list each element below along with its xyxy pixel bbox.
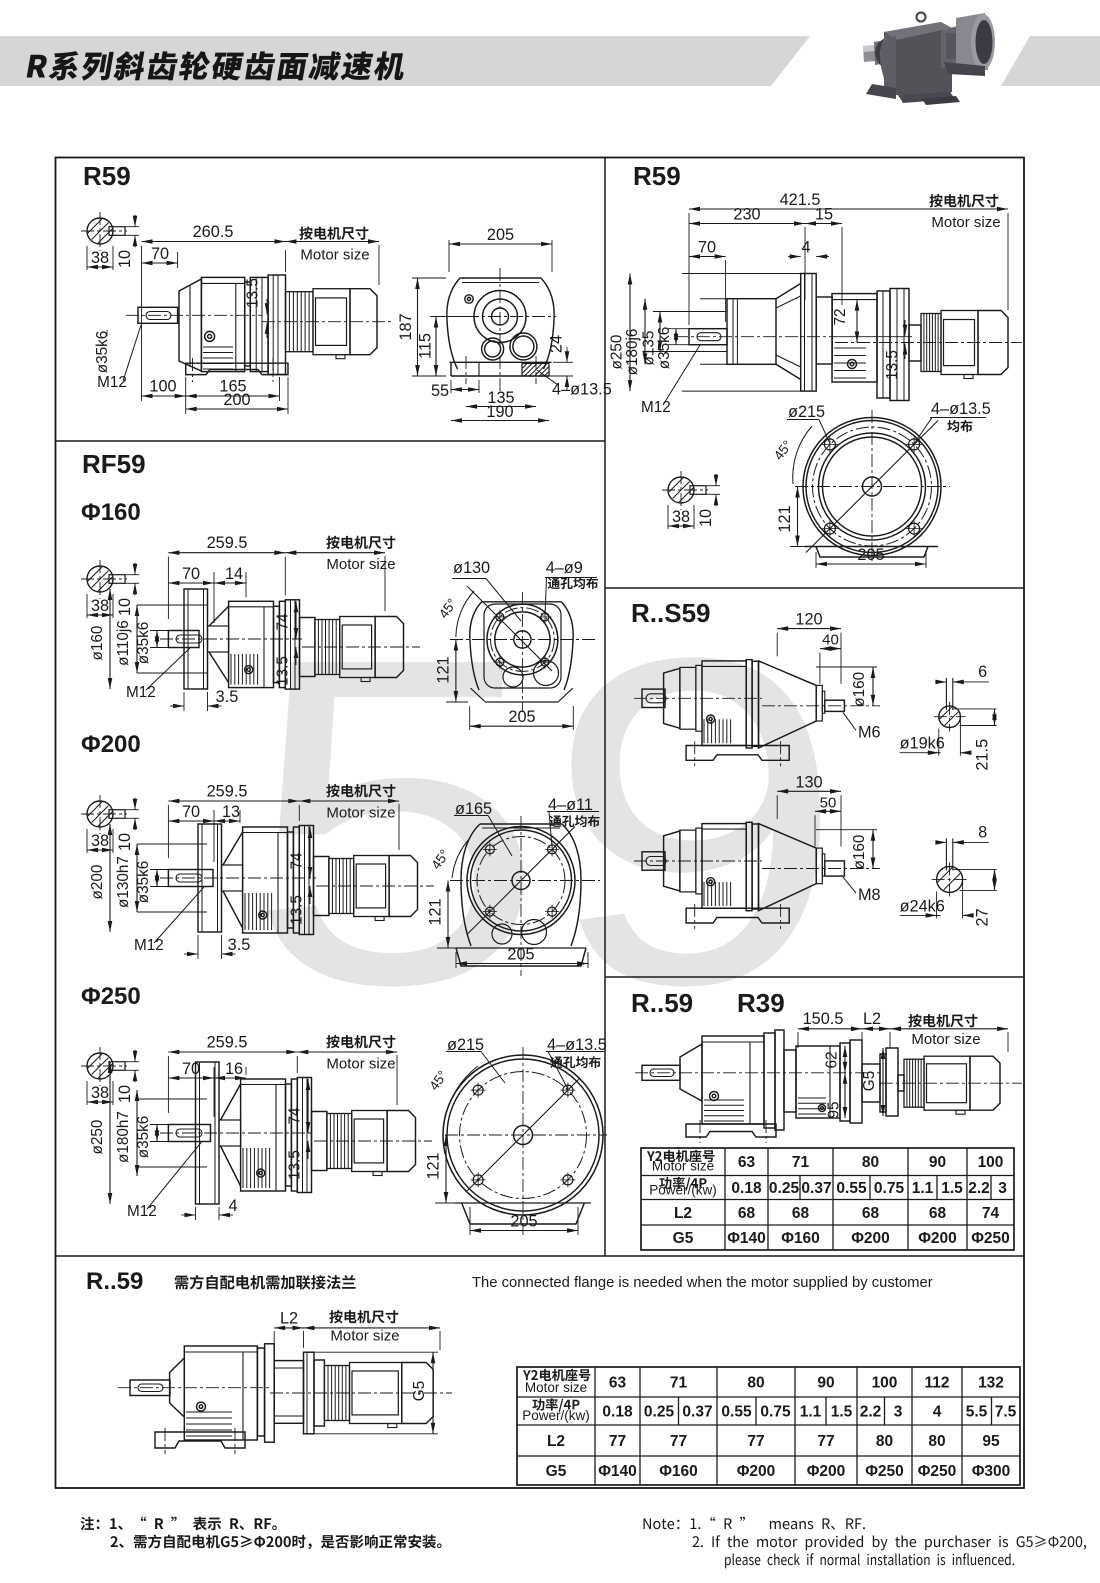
svg-text:13.5: 13.5	[245, 278, 262, 308]
svg-text:71: 71	[792, 1154, 810, 1171]
svg-text:38: 38	[91, 249, 109, 267]
svg-text:205: 205	[510, 1213, 537, 1231]
svg-text:80: 80	[876, 1433, 893, 1450]
svg-text:10: 10	[697, 509, 715, 527]
svg-text:ø160: ø160	[851, 835, 868, 870]
svg-text:2.2: 2.2	[860, 1404, 882, 1421]
svg-text:ø250: ø250	[89, 1120, 106, 1155]
svg-text:205: 205	[508, 708, 535, 726]
svg-text:4–ø9: 4–ø9	[546, 559, 583, 577]
svg-text:ø110j6: ø110j6	[115, 620, 132, 666]
svg-text:4: 4	[801, 239, 810, 257]
svg-text:38: 38	[91, 1084, 109, 1102]
svg-text:Power/(kw): Power/(kw)	[522, 1408, 590, 1423]
svg-text:Φ300: Φ300	[972, 1463, 1011, 1480]
svg-text:38: 38	[91, 832, 109, 850]
svg-text:68: 68	[929, 1205, 947, 1222]
svg-text:Power/(kw): Power/(kw)	[649, 1183, 717, 1198]
svg-text:38: 38	[672, 508, 690, 526]
svg-text:0.55: 0.55	[836, 1180, 867, 1197]
svg-text:Φ250: Φ250	[81, 983, 141, 1010]
svg-text:77: 77	[609, 1433, 626, 1450]
svg-text:100: 100	[978, 1154, 1004, 1171]
svg-text:121: 121	[776, 505, 794, 532]
svg-text:50: 50	[820, 794, 837, 811]
svg-text:0.25: 0.25	[769, 1180, 800, 1197]
svg-text:ø35k6: ø35k6	[94, 331, 111, 374]
svg-text:205: 205	[487, 226, 514, 244]
svg-text:95: 95	[826, 1101, 843, 1118]
svg-text:68: 68	[792, 1205, 810, 1222]
svg-text:ø35k6: ø35k6	[135, 1116, 152, 1159]
svg-text:Φ200: Φ200	[737, 1463, 776, 1480]
svg-text:13.5: 13.5	[289, 895, 306, 925]
svg-text:70: 70	[698, 239, 716, 257]
svg-text:R..S59: R..S59	[631, 598, 711, 628]
svg-text:10: 10	[116, 250, 134, 268]
svg-text:3: 3	[998, 1180, 1007, 1197]
svg-text:100: 100	[149, 378, 176, 396]
svg-text:21.5: 21.5	[974, 739, 992, 771]
svg-text:ø135: ø135	[641, 331, 658, 366]
svg-text:90: 90	[817, 1375, 834, 1392]
svg-text:Φ200: Φ200	[81, 731, 141, 758]
svg-text:77: 77	[670, 1433, 687, 1450]
svg-text:G5: G5	[411, 1381, 428, 1401]
svg-text:G5: G5	[546, 1463, 567, 1480]
svg-text:0.75: 0.75	[760, 1404, 791, 1421]
svg-text:ø180h7: ø180h7	[115, 1111, 132, 1163]
svg-text:5.5: 5.5	[966, 1404, 988, 1421]
svg-text:4: 4	[933, 1404, 942, 1421]
svg-text:Φ140: Φ140	[598, 1463, 637, 1480]
svg-text:13.5: 13.5	[275, 656, 292, 686]
svg-text:Motor size: Motor size	[300, 247, 369, 264]
svg-text:4: 4	[228, 1197, 237, 1215]
svg-text:55: 55	[431, 382, 449, 400]
svg-text:Φ250: Φ250	[971, 1230, 1010, 1247]
svg-text:259.5: 259.5	[207, 1034, 248, 1052]
svg-text:Φ160: Φ160	[659, 1463, 698, 1480]
svg-text:L2: L2	[674, 1205, 692, 1222]
svg-text:ø200: ø200	[89, 865, 106, 900]
svg-text:100: 100	[872, 1375, 898, 1392]
svg-text:230: 230	[733, 206, 760, 224]
svg-text:68: 68	[738, 1205, 756, 1222]
svg-text:ø130h7: ø130h7	[115, 856, 132, 908]
svg-text:74: 74	[287, 1107, 304, 1125]
svg-text:ø180j6: ø180j6	[624, 329, 641, 376]
svg-text:112: 112	[924, 1375, 949, 1392]
svg-text:Motor size: Motor size	[931, 214, 1000, 231]
svg-text:ø19k6: ø19k6	[900, 735, 945, 753]
svg-text:259.5: 259.5	[207, 783, 248, 801]
svg-text:1.1: 1.1	[800, 1404, 822, 1421]
svg-text:27: 27	[974, 908, 992, 926]
svg-text:63: 63	[609, 1375, 627, 1392]
svg-text:0.18: 0.18	[731, 1180, 762, 1197]
svg-text:121: 121	[427, 898, 445, 925]
svg-text:190: 190	[486, 403, 513, 421]
svg-text:R..59: R..59	[631, 988, 693, 1018]
svg-text:72: 72	[832, 308, 849, 325]
svg-text:74: 74	[289, 852, 306, 870]
svg-text:90: 90	[929, 1154, 946, 1171]
svg-text:95: 95	[982, 1433, 1000, 1450]
svg-text:Φ160: Φ160	[781, 1230, 820, 1247]
svg-text:3.5: 3.5	[228, 936, 251, 954]
svg-text:70: 70	[182, 565, 200, 583]
svg-text:L2: L2	[280, 1310, 298, 1328]
svg-text:0.37: 0.37	[682, 1404, 712, 1421]
svg-text:74: 74	[275, 613, 292, 631]
svg-text:M12: M12	[641, 399, 671, 416]
svg-text:M8: M8	[858, 886, 881, 904]
svg-text:74: 74	[982, 1205, 1000, 1222]
svg-text:G5: G5	[673, 1230, 694, 1247]
svg-text:Motor size: Motor size	[326, 1056, 395, 1073]
svg-text:3: 3	[894, 1404, 903, 1421]
svg-text:R39: R39	[737, 988, 785, 1018]
svg-text:ø250: ø250	[609, 335, 626, 370]
svg-text:2.2: 2.2	[968, 1180, 990, 1197]
svg-text:40: 40	[822, 632, 839, 649]
svg-text:G5: G5	[861, 1071, 878, 1091]
svg-text:4–ø13.5: 4–ø13.5	[552, 381, 612, 399]
svg-text:45°: 45°	[771, 438, 795, 463]
svg-text:M12: M12	[97, 374, 127, 391]
svg-text:Φ200: Φ200	[851, 1230, 890, 1247]
svg-text:ø160: ø160	[851, 672, 868, 707]
svg-text:10: 10	[116, 833, 134, 851]
svg-text:260.5: 260.5	[193, 223, 234, 241]
svg-text:4–ø13.5: 4–ø13.5	[931, 400, 991, 418]
svg-text:R..59: R..59	[86, 1268, 143, 1295]
svg-text:121: 121	[425, 1152, 443, 1179]
svg-text:8: 8	[978, 823, 987, 841]
svg-text:The connected flange is needed: The connected flange is needed when the …	[472, 1275, 933, 1291]
svg-text:6: 6	[978, 663, 987, 681]
svg-text:3.5: 3.5	[216, 688, 239, 706]
svg-text:M6: M6	[858, 723, 881, 741]
svg-text:7.5: 7.5	[995, 1404, 1017, 1421]
svg-text:13.5: 13.5	[884, 350, 901, 380]
svg-text:80: 80	[747, 1375, 764, 1392]
svg-text:80: 80	[862, 1154, 879, 1171]
svg-text:Φ160: Φ160	[81, 499, 141, 526]
svg-text:13: 13	[222, 803, 240, 821]
svg-text:0.55: 0.55	[721, 1404, 752, 1421]
svg-text:70: 70	[182, 803, 200, 821]
svg-text:Motor size: Motor size	[525, 1380, 587, 1395]
svg-text:Motor size: Motor size	[652, 1159, 714, 1174]
svg-text:ø130: ø130	[453, 559, 490, 577]
svg-text:Motor size: Motor size	[326, 805, 395, 822]
svg-text:1.1: 1.1	[912, 1180, 934, 1197]
svg-text:ø160: ø160	[89, 626, 106, 661]
svg-text:71: 71	[670, 1375, 688, 1392]
svg-text:Φ200: Φ200	[918, 1230, 957, 1247]
svg-text:132: 132	[978, 1375, 1004, 1392]
svg-text:Φ200: Φ200	[807, 1463, 846, 1480]
svg-text:115: 115	[417, 333, 435, 359]
svg-text:RF59: RF59	[82, 449, 146, 479]
svg-text:L2: L2	[547, 1433, 565, 1450]
svg-text:L2: L2	[863, 1010, 881, 1028]
svg-text:63: 63	[738, 1154, 756, 1171]
svg-text:Φ250: Φ250	[918, 1463, 957, 1480]
svg-text:M12: M12	[126, 684, 156, 701]
svg-text:62: 62	[824, 1051, 841, 1068]
svg-text:ø35k6: ø35k6	[135, 622, 152, 665]
svg-text:10: 10	[116, 1085, 134, 1103]
svg-text:14: 14	[225, 565, 243, 583]
svg-text:150.5: 150.5	[803, 1010, 844, 1028]
svg-text:38: 38	[91, 597, 109, 615]
svg-text:120: 120	[795, 611, 822, 629]
svg-text:R59: R59	[633, 161, 681, 191]
svg-text:1.5: 1.5	[831, 1404, 853, 1421]
svg-text:80: 80	[928, 1433, 945, 1450]
svg-text:M12: M12	[134, 937, 164, 954]
svg-text:77: 77	[817, 1433, 834, 1450]
svg-text:0.75: 0.75	[874, 1180, 905, 1197]
svg-text:187: 187	[397, 313, 415, 340]
svg-text:ø35k6: ø35k6	[656, 327, 673, 370]
svg-text:121: 121	[435, 656, 453, 683]
svg-text:Motor size: Motor size	[330, 1328, 399, 1345]
svg-text:0.18: 0.18	[602, 1404, 633, 1421]
svg-text:68: 68	[862, 1205, 880, 1222]
svg-text:15: 15	[815, 206, 833, 224]
svg-text:Motor size: Motor size	[911, 1031, 980, 1048]
svg-text:13.5: 13.5	[287, 1150, 304, 1180]
svg-text:24: 24	[548, 335, 566, 353]
svg-text:R59: R59	[83, 161, 131, 191]
svg-text:205: 205	[857, 546, 884, 564]
svg-text:130: 130	[795, 773, 822, 791]
svg-text:ø35k6: ø35k6	[135, 861, 152, 904]
svg-text:ø215: ø215	[788, 403, 825, 421]
svg-text:M12: M12	[127, 1203, 157, 1220]
svg-text:200: 200	[223, 391, 250, 409]
svg-text:16: 16	[225, 1060, 243, 1078]
svg-text:205: 205	[507, 946, 534, 964]
svg-text:10: 10	[116, 598, 134, 616]
svg-text:259.5: 259.5	[207, 534, 248, 552]
svg-text:1.5: 1.5	[941, 1180, 963, 1197]
svg-text:Φ140: Φ140	[727, 1230, 766, 1247]
svg-text:ø24k6: ø24k6	[900, 897, 945, 915]
svg-text:77: 77	[747, 1433, 764, 1450]
svg-text:0.37: 0.37	[801, 1180, 831, 1197]
svg-text:Φ250: Φ250	[865, 1463, 904, 1480]
svg-text:0.25: 0.25	[644, 1404, 675, 1421]
svg-text:70: 70	[151, 245, 169, 263]
